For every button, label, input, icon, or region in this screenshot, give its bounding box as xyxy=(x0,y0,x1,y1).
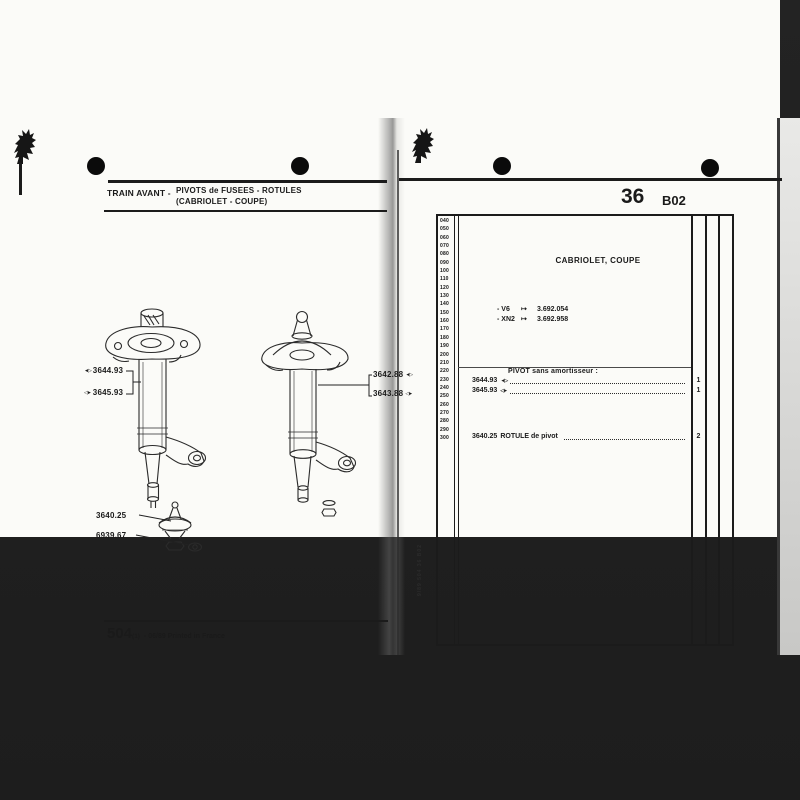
index-number: 190 xyxy=(440,342,454,350)
doc-note: - 06/89 Printed in France xyxy=(144,633,225,640)
header-rule-top xyxy=(108,180,387,183)
strut-pivot-drawing-right xyxy=(245,303,385,538)
page-title-line2: (CABRIOLET - COUPE) xyxy=(176,197,267,206)
index-number-column: 0400500600700800901001101201301401501601… xyxy=(440,217,454,442)
index-number: 270 xyxy=(440,409,454,417)
page-title-line1: PIVOTS de FUSEES - ROTULES xyxy=(176,186,302,195)
quantity-cell: 1 xyxy=(692,377,705,384)
peugeot-lion-logo xyxy=(10,127,37,165)
index-number: 140 xyxy=(440,300,454,308)
index-number: 130 xyxy=(440,292,454,300)
side-arrow-icon: ◁► xyxy=(84,390,91,396)
parts-row: 3645.93 ◁► xyxy=(472,387,688,394)
part-number: 3644.93 xyxy=(472,377,497,384)
side-arrow-icon: ◁► xyxy=(405,391,412,397)
table-line-vertical xyxy=(458,214,459,646)
part-label: ◄▷ 3644.93 xyxy=(84,366,123,375)
strut-pivot-drawing-left xyxy=(85,300,245,565)
part-number: 3645.93 xyxy=(93,388,123,397)
part-number: 3642.88 xyxy=(373,370,403,379)
table-border-top xyxy=(437,214,733,216)
parts-row: 3640.25 ROTULE de pivot xyxy=(472,433,688,440)
index-number: 110 xyxy=(440,275,454,283)
part-label: 3643.88 ◁► xyxy=(373,389,412,398)
spine-print-code: 9/89 504 36 B02 xyxy=(417,516,423,596)
part-number: 3640.25 xyxy=(472,433,497,440)
index-number: 250 xyxy=(440,392,454,400)
index-number: 300 xyxy=(440,434,454,442)
binder-hole xyxy=(291,157,309,175)
index-number: 170 xyxy=(440,325,454,333)
index-number: 040 xyxy=(440,217,454,225)
section-label: TRAIN AVANT - xyxy=(107,189,171,199)
index-number: 210 xyxy=(440,359,454,367)
side-arrow-icon: ◄▷ xyxy=(500,378,507,384)
part-label: 3640.25 xyxy=(96,511,126,520)
spine-page-edge-line xyxy=(397,150,399,655)
table-line-vertical xyxy=(705,214,707,646)
dotted-leader xyxy=(564,437,685,440)
index-number: 290 xyxy=(440,426,454,434)
index-number: 260 xyxy=(440,401,454,409)
index-number: 050 xyxy=(440,225,454,233)
page-stack-margin xyxy=(780,118,800,655)
peugeot-lion-logo xyxy=(408,126,435,164)
model-heading: CABRIOLET, COUPE xyxy=(482,256,714,265)
margin-tick xyxy=(19,163,22,195)
table-line-vertical xyxy=(718,214,720,646)
part-label: ◁► 3645.93 xyxy=(84,388,123,397)
grid-code: B02 xyxy=(662,193,686,208)
binder-hole xyxy=(493,157,511,175)
doc-index: (1) xyxy=(132,633,140,640)
index-number: 150 xyxy=(440,309,454,317)
dotted-leader xyxy=(510,381,685,384)
index-number: 070 xyxy=(440,242,454,250)
index-number: 060 xyxy=(440,234,454,242)
parts-row: 3644.93 ◄▷ xyxy=(472,377,688,384)
index-number: 160 xyxy=(440,317,454,325)
table-line-vertical xyxy=(691,214,693,646)
table-border-bottom xyxy=(437,644,734,646)
index-number: 090 xyxy=(440,259,454,267)
applicability-row: - XN2 ↦ 3.692.958 xyxy=(497,315,568,323)
footer-rule xyxy=(104,620,388,622)
side-arrow-icon: ◄▷ xyxy=(405,372,412,378)
footer: 504 (1) - 06/89 Printed in France xyxy=(107,625,225,642)
part-description: ROTULE de pivot xyxy=(500,433,558,440)
header-rule-bottom xyxy=(104,210,387,212)
applicability-row: - V6 ↦ 3.692.054 xyxy=(497,305,568,313)
table-line-vertical xyxy=(454,214,455,646)
index-number: 240 xyxy=(440,384,454,392)
index-number: 200 xyxy=(440,351,454,359)
engine-code: - V6 xyxy=(497,306,521,313)
right-page-edge xyxy=(777,118,780,655)
engine-code: - XN2 xyxy=(497,316,521,323)
from-serial-arrow-icon: ↦ xyxy=(521,315,537,323)
quantity-cell: 1 xyxy=(692,387,705,394)
part-number: 3644.93 xyxy=(93,366,123,375)
binder-hole xyxy=(87,157,105,175)
side-arrow-icon: ◁► xyxy=(500,388,507,394)
doc-number: 504 xyxy=(107,625,132,642)
part-label: 3642.88 ◄▷ xyxy=(373,370,412,379)
table-border-left xyxy=(436,214,438,646)
binder-hole xyxy=(701,159,719,177)
index-number: 100 xyxy=(440,267,454,275)
side-arrow-icon: ◄▷ xyxy=(84,368,91,374)
index-number: 180 xyxy=(440,334,454,342)
scanned-catalog-photo: TRAIN AVANT - PIVOTS de FUSEES - ROTULES… xyxy=(0,0,800,800)
from-serial-arrow-icon: ↦ xyxy=(521,305,537,313)
part-label: 6939.67 xyxy=(96,531,126,540)
index-number: 280 xyxy=(440,417,454,425)
serial-number: 3.692.054 xyxy=(537,306,568,313)
serial-number: 3.692.958 xyxy=(537,316,568,323)
chapter-number: 36 xyxy=(621,185,644,209)
header-rule-right-page xyxy=(399,178,782,181)
part-number: 3645.93 xyxy=(472,387,497,394)
table-border-right xyxy=(732,214,734,646)
index-number: 230 xyxy=(440,376,454,384)
part-number: 3643.88 xyxy=(373,389,403,398)
index-number: 080 xyxy=(440,250,454,258)
index-number: 220 xyxy=(440,367,454,375)
index-number: 120 xyxy=(440,284,454,292)
quantity-cell: 2 xyxy=(692,433,705,440)
dotted-leader xyxy=(510,391,685,394)
section-heading: PIVOT sans amortisseur : xyxy=(508,368,598,376)
